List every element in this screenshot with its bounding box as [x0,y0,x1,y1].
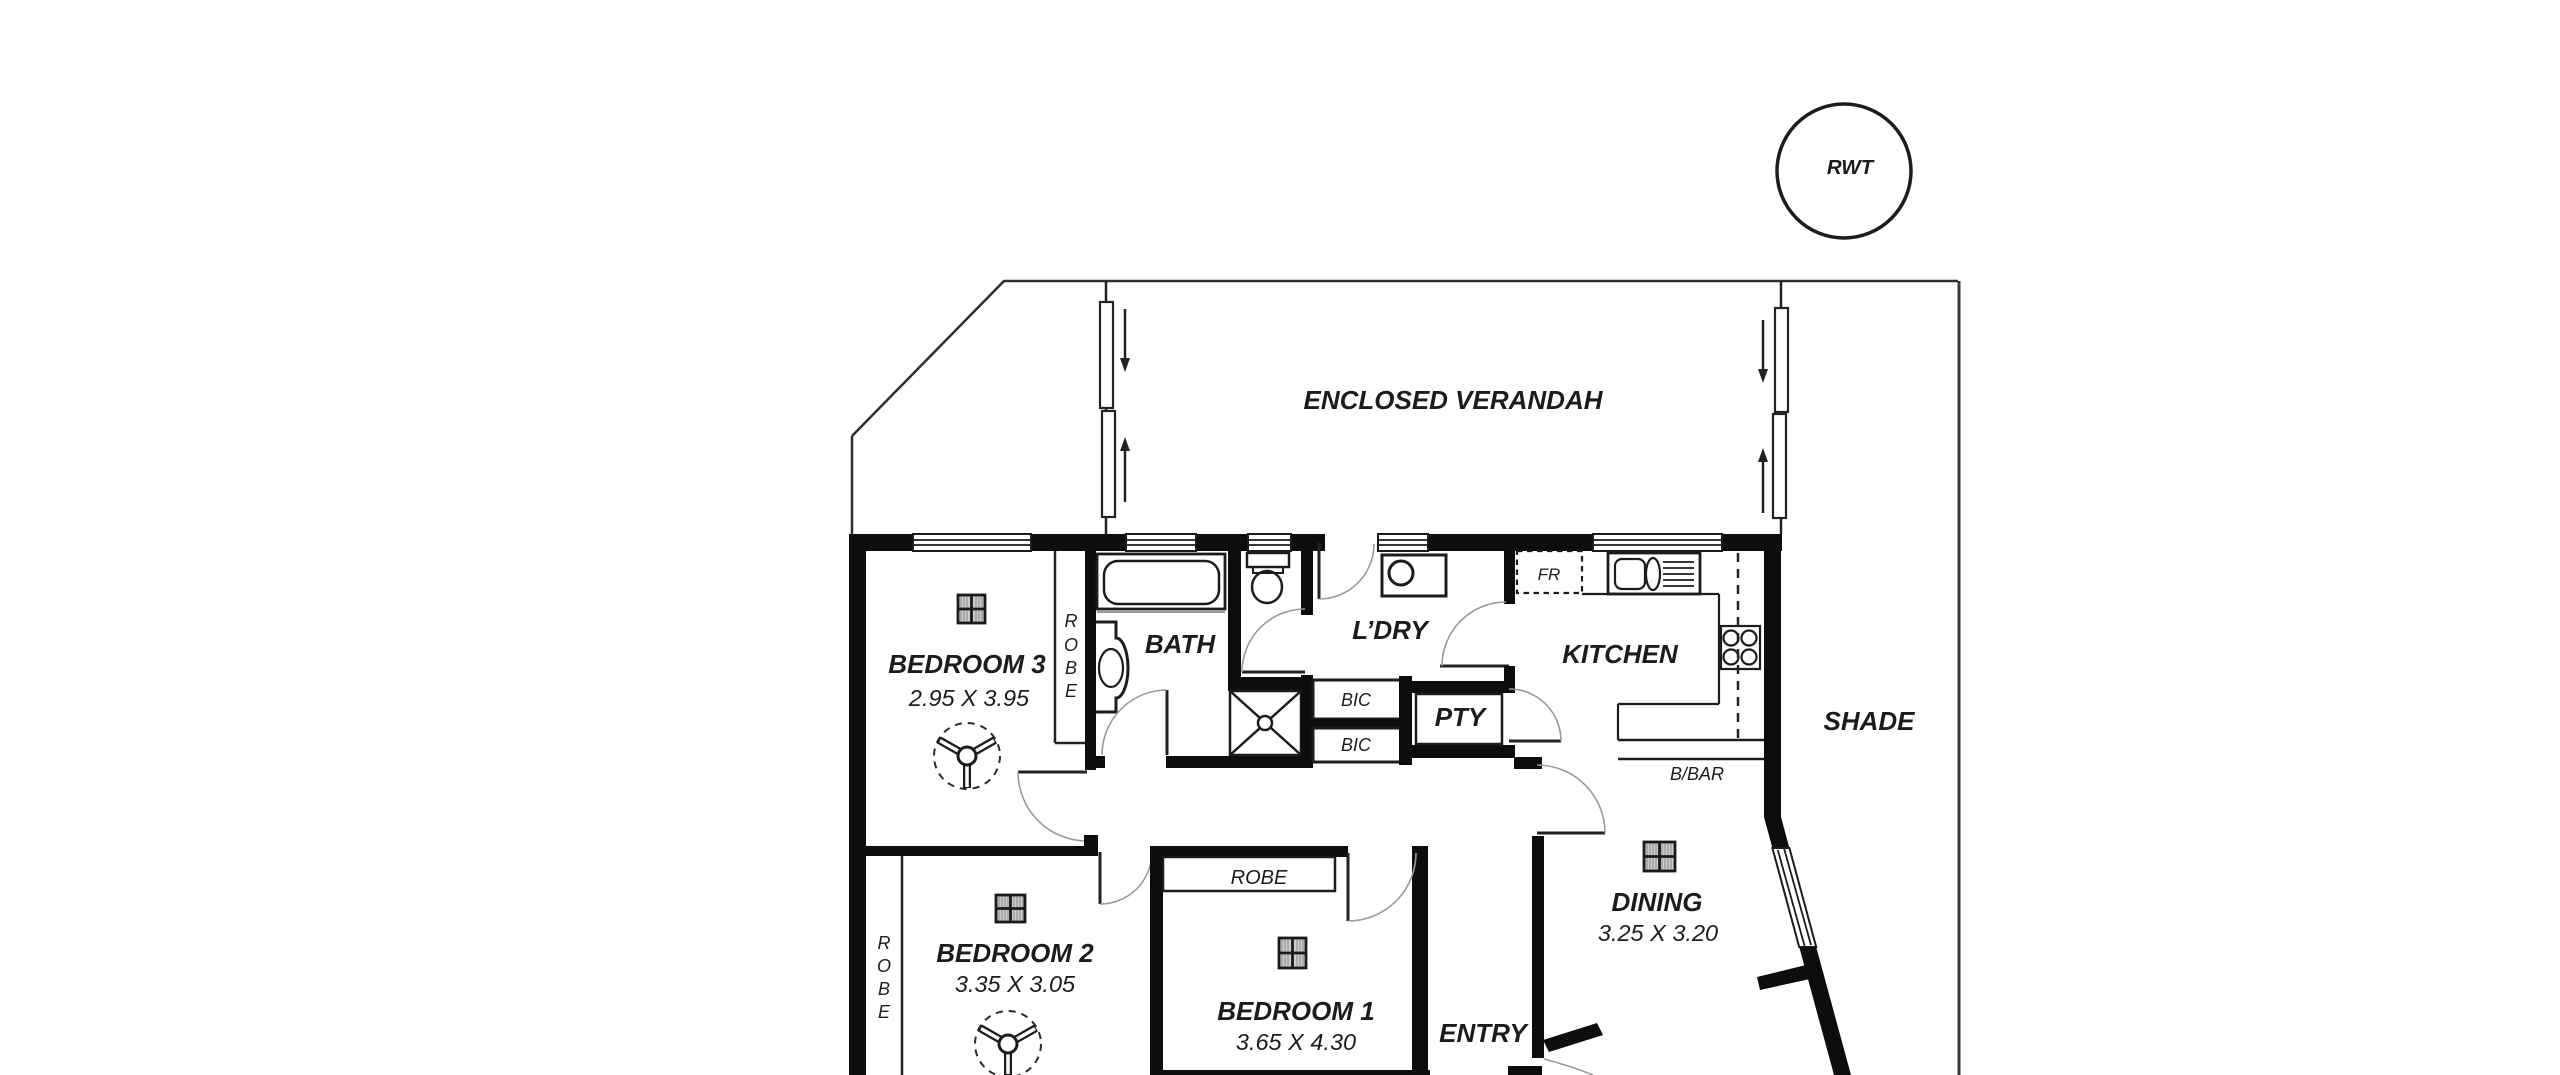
svg-text:DINING: DINING [1612,887,1703,917]
svg-text:3.35 X 3.05: 3.35 X 3.05 [955,971,1076,997]
svg-text:KITCHEN: KITCHEN [1562,639,1679,669]
svg-text:BEDROOM 1: BEDROOM 1 [1217,996,1374,1026]
svg-text:O: O [877,956,891,976]
svg-text:E: E [1065,681,1078,701]
svg-text:R: R [878,933,891,953]
svg-text:O: O [1064,635,1078,655]
svg-text:SHADE: SHADE [1823,706,1915,736]
svg-text:B: B [1065,658,1077,678]
svg-text:R: R [1065,611,1078,631]
svg-text:ENTRY: ENTRY [1439,1018,1529,1048]
svg-text:ENCLOSED VERANDAH: ENCLOSED VERANDAH [1303,385,1603,415]
svg-text:L’DRY: L’DRY [1352,615,1430,645]
svg-text:RWT: RWT [1827,156,1875,179]
svg-text:2.95 X 3.95: 2.95 X 3.95 [908,685,1030,711]
svg-text:B: B [878,979,890,999]
svg-text:BEDROOM 2: BEDROOM 2 [936,938,1094,968]
svg-text:BATH: BATH [1145,629,1217,659]
svg-text:BEDROOM 3: BEDROOM 3 [888,649,1046,679]
svg-text:ROBE: ROBE [1231,867,1288,889]
svg-text:BIC: BIC [1341,735,1372,755]
svg-text:E: E [878,1002,891,1022]
svg-text:3.65 X 4.30: 3.65 X 4.30 [1236,1029,1356,1055]
svg-text:PTY: PTY [1435,702,1488,732]
svg-text:BIC: BIC [1341,690,1372,710]
svg-text:FR: FR [1538,565,1561,584]
svg-text:3.25 X 3.20: 3.25 X 3.20 [1598,920,1718,946]
svg-text:B/BAR: B/BAR [1670,764,1724,784]
